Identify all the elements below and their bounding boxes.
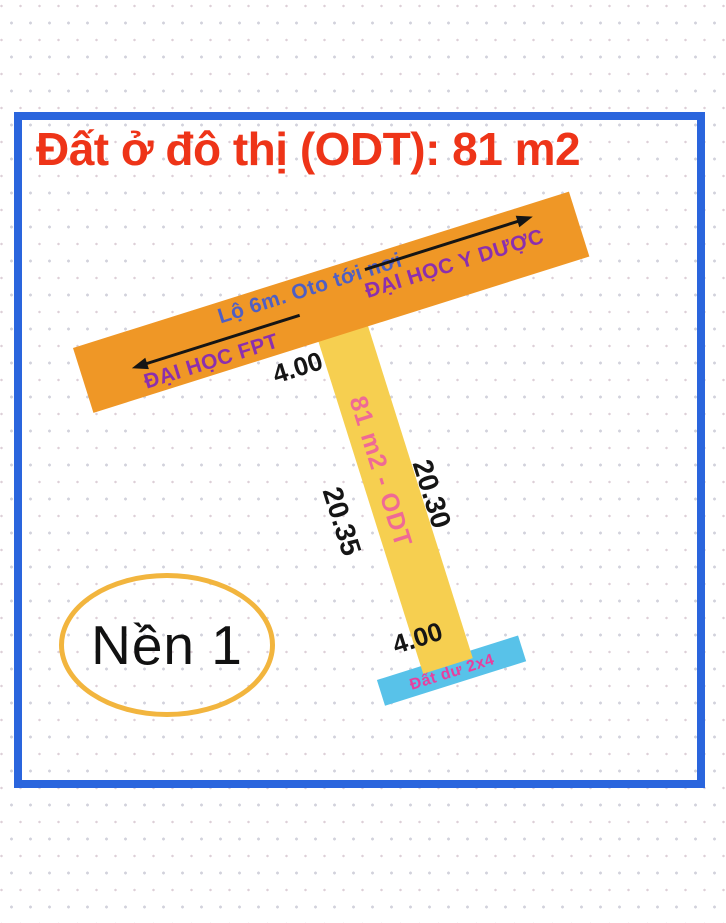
lot-number-label: Nền 1 bbox=[91, 613, 243, 677]
lot-number-ellipse: Nền 1 bbox=[59, 573, 275, 717]
page-title: Đất ở đô thị (ODT): 81 m2 bbox=[36, 122, 696, 176]
